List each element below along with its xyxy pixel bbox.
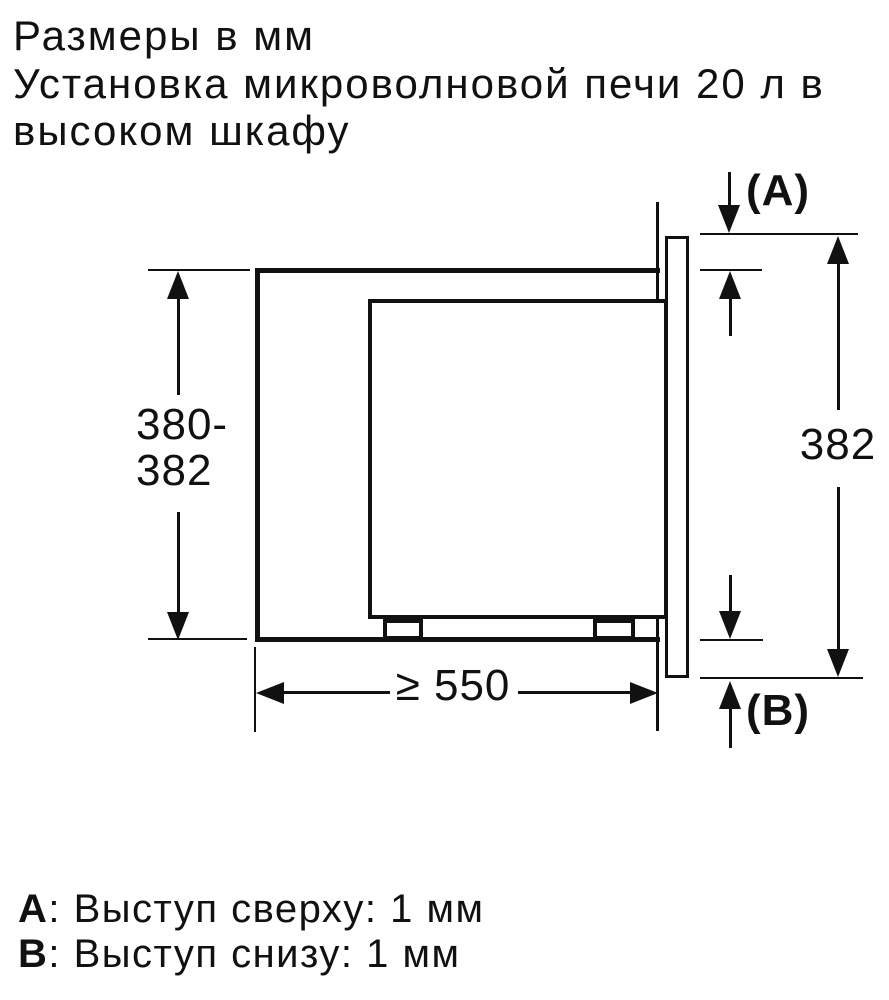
legend-item-b: B: Выступ снизу: 1 мм (18, 932, 485, 977)
cabinet-top-wall (255, 268, 660, 273)
title-line-3: высоком шкафу (13, 107, 825, 155)
microwave-body (368, 299, 668, 619)
legend: A: Выступ сверху: 1 мм B: Выступ снизу: … (18, 887, 485, 977)
legend-text-a: : Выступ сверху: 1 мм (48, 887, 484, 931)
dim-b-down-shaft (729, 575, 732, 614)
dim-b-bottom-ref-line (700, 677, 863, 679)
microwave-foot-left (383, 619, 423, 640)
dim-a-label: (A) (746, 168, 810, 214)
dim-a-arrow-up (719, 271, 741, 299)
dim-left-shaft-bottom (177, 512, 180, 615)
dim-right-shaft-top (837, 261, 840, 410)
dim-right-arrow-up (827, 236, 849, 264)
page-title: Размеры в мм Установка микроволновой печ… (13, 12, 825, 155)
title-line-1: Размеры в мм (13, 12, 825, 60)
dim-b-arrow-up (719, 681, 741, 709)
title-line-2: Установка микроволновой печи 20 л в (13, 60, 825, 108)
legend-item-a: A: Выступ сверху: 1 мм (18, 887, 485, 932)
dim-bottom-arrow-right (630, 682, 658, 704)
dim-a-up-shaft (729, 296, 732, 336)
dim-b-arrow-down (719, 611, 741, 639)
dim-left-shaft-top (177, 296, 180, 395)
dim-b-up-shaft (729, 706, 732, 748)
dim-right-value: 382 (778, 422, 889, 468)
dim-bottom-value: ≥ 550 (353, 663, 553, 709)
dim-a-top-ref-line (700, 233, 858, 235)
dim-left-ref-line-top (148, 269, 250, 271)
installation-diagram-page: Размеры в мм Установка микроволновой печ… (0, 0, 889, 1000)
dim-left-ref-line-bottom (148, 638, 247, 640)
cabinet-left-wall (255, 268, 260, 642)
dim-left-value-line1: 380- (136, 402, 228, 448)
legend-text-b: : Выступ снизу: 1 мм (48, 932, 460, 976)
dim-left-arrow-up (167, 271, 189, 299)
dim-bottom-arrow-left (256, 682, 284, 704)
dim-b-top-ref-line (700, 639, 763, 641)
dim-b-label: (B) (746, 688, 810, 734)
legend-key-a: A (18, 887, 48, 931)
dim-left-arrow-down (167, 612, 189, 640)
dim-right-arrow-down (827, 649, 849, 677)
microwave-foot-right (593, 619, 635, 640)
dim-a-down-shaft (728, 172, 731, 207)
microwave-trim-frame (665, 236, 689, 678)
dim-right-shaft-bottom (837, 487, 840, 652)
dim-left-value-line2: 382 (136, 448, 228, 494)
dim-bottom-shaft-right (518, 691, 632, 694)
legend-key-b: B (18, 932, 48, 976)
dim-a-arrow-down (718, 205, 740, 233)
dim-left-value: 380- 382 (136, 402, 228, 494)
